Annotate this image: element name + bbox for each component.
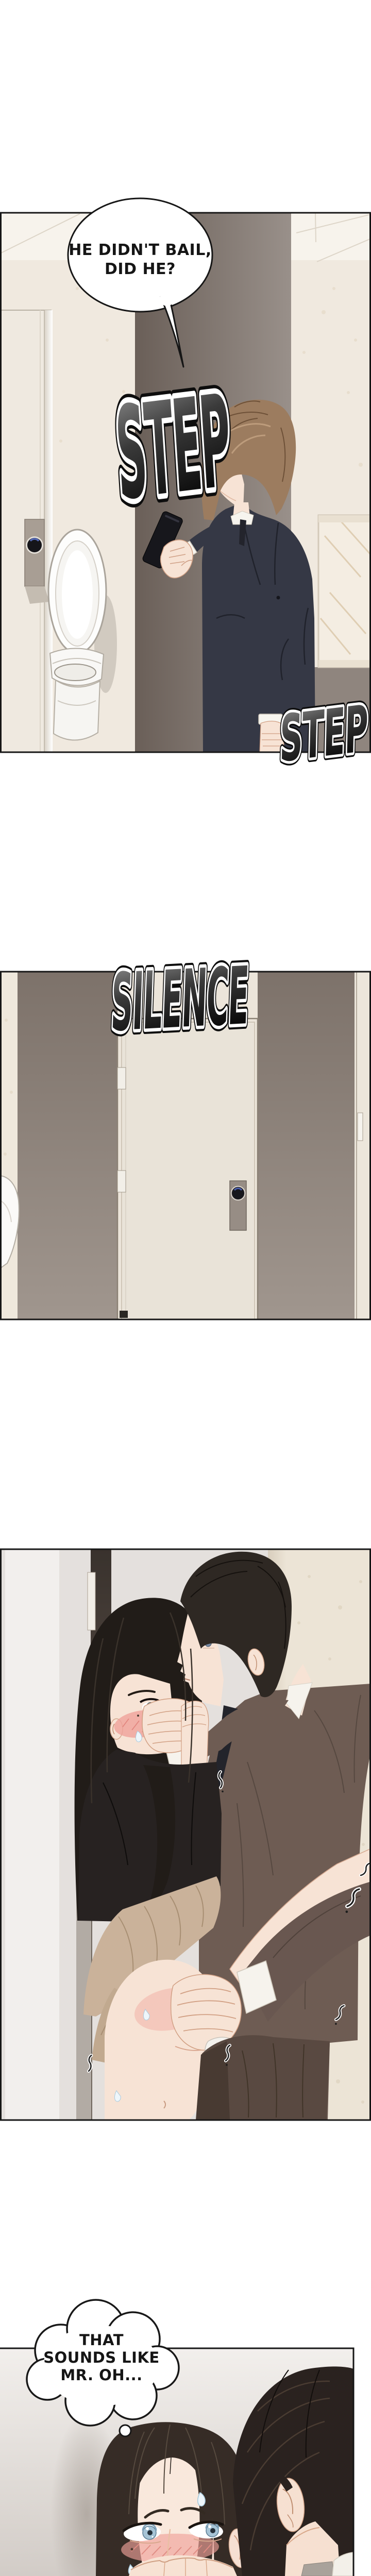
speech-line-1: HE DIDN'T BAIL, bbox=[69, 241, 211, 259]
thought-line-2: SOUNDS LIKE bbox=[43, 2349, 159, 2366]
thought-line-3: MR. OH... bbox=[60, 2366, 142, 2384]
comic-page: STEP STEP STEP STEP STEP STEP HE DIDN'T … bbox=[0, 0, 371, 2576]
thought-line-1: THAT bbox=[79, 2331, 124, 2349]
sfx-silence-fill: SILENCE bbox=[110, 949, 250, 1049]
his-trousers bbox=[196, 2035, 330, 2120]
adjacent-door-handle bbox=[358, 1113, 363, 1141]
sfx-step-upper: STEP STEP STEP bbox=[104, 367, 243, 529]
marble-accent-band bbox=[318, 515, 371, 667]
toilet-bowl bbox=[54, 680, 100, 740]
sfx-step-upper-fill: STEP bbox=[112, 367, 234, 529]
sfx-step-lower: STEP STEP STEP bbox=[270, 691, 371, 777]
light-band bbox=[5, 1549, 59, 2120]
her-mole bbox=[137, 1715, 139, 1717]
handle-plate bbox=[230, 1181, 246, 1230]
speech-line-2: DID HE? bbox=[105, 260, 176, 278]
adjacent-door bbox=[355, 972, 371, 1319]
hinge-bottom bbox=[117, 1171, 126, 1192]
left-marble-strip bbox=[0, 972, 18, 1319]
panel-3-couple bbox=[0, 1549, 371, 2120]
right-wall bbox=[258, 972, 355, 1319]
comic-artwork: STEP STEP STEP STEP STEP STEP HE DIDN'T … bbox=[0, 0, 371, 2576]
thought-tail-dot bbox=[120, 2425, 131, 2436]
suit-button bbox=[277, 596, 280, 600]
sfx-silence: SILENCE SILENCE SILENCE bbox=[105, 949, 255, 1049]
left-wall bbox=[18, 972, 117, 1319]
hinge-top bbox=[117, 1067, 126, 1089]
sfx-step-lower-fill: STEP bbox=[279, 691, 368, 777]
woman-face-closeup bbox=[96, 2422, 252, 2576]
mole bbox=[131, 2548, 133, 2551]
door-hinge bbox=[88, 1572, 95, 1630]
door-stop bbox=[120, 1311, 128, 1318]
stall-door-edge bbox=[44, 310, 53, 752]
lock-indicator bbox=[27, 538, 42, 552]
stall-door-closed bbox=[117, 1019, 258, 1319]
door-leaf bbox=[123, 1024, 254, 1319]
